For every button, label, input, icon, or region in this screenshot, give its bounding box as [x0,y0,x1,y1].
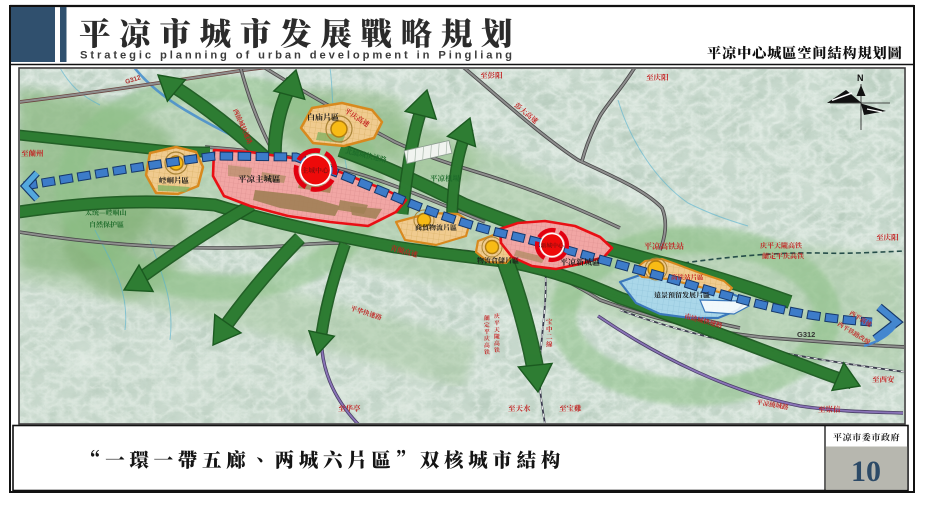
svg-text:G312: G312 [797,330,815,339]
svg-text:Strategic planning of urban de: Strategic planning of urban development … [80,50,515,62]
svg-text:10: 10 [851,455,881,488]
svg-text:N: N [857,73,864,83]
